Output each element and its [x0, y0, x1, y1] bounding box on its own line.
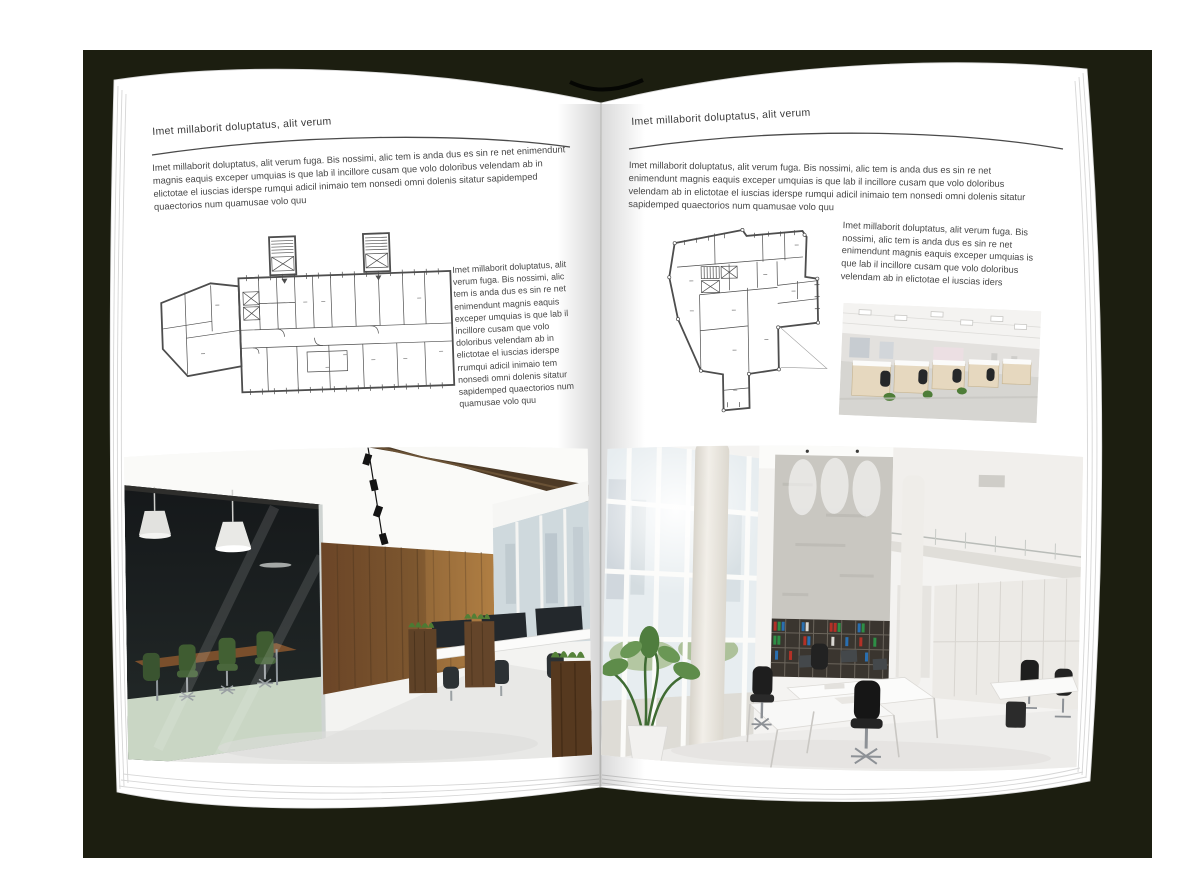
right-office-photo	[601, 439, 1084, 781]
glass-meeting-room	[124, 482, 326, 767]
waste-bin	[1006, 701, 1027, 727]
column-markers	[667, 227, 821, 413]
right-small-office-photo	[839, 303, 1042, 423]
magazine-spread-mockup: Imet millaborit doluptatus, alit verum I…	[0, 0, 1200, 891]
left-page-side-text: Imet millaborit doluptatus, alit verum f…	[452, 258, 579, 411]
round-column-2	[898, 475, 924, 687]
concrete-wall	[772, 455, 893, 621]
round-column	[689, 441, 730, 764]
right-page-intro: Imet millaborit doluptatus, alit verum f…	[628, 159, 1029, 217]
bookshelf-binders	[771, 619, 890, 679]
window-wall	[601, 439, 763, 764]
right-floor-plan	[644, 218, 839, 419]
left-floor-plan	[153, 227, 461, 419]
left-office-photo	[124, 443, 592, 769]
right-page-side-text: Imet millaborit doluptatus, alit verum f…	[840, 219, 1042, 290]
